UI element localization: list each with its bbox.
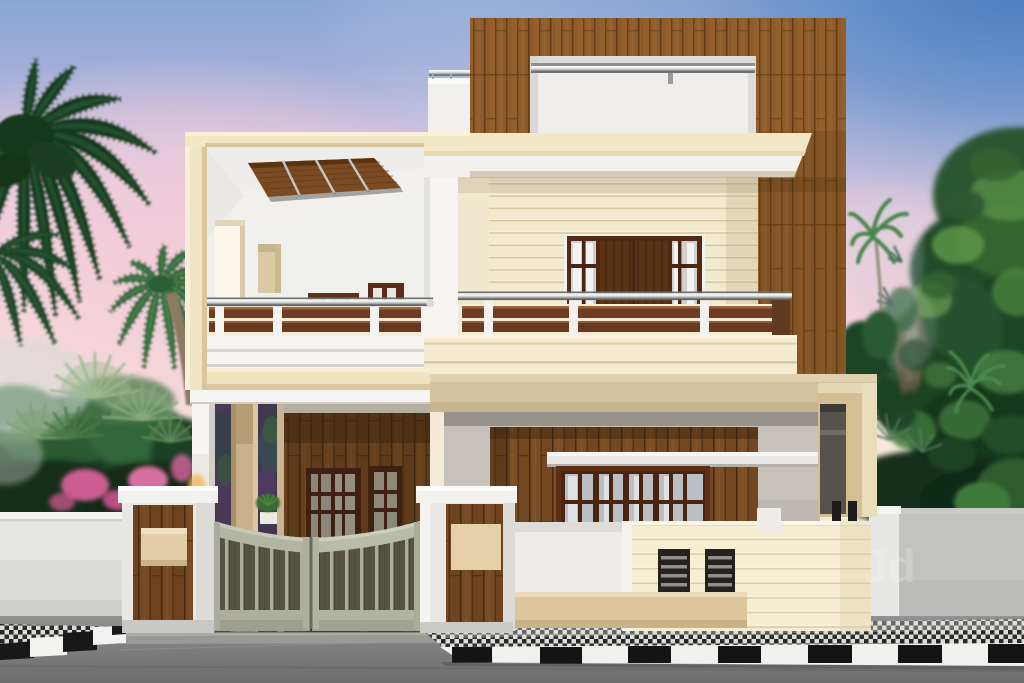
svg-text:Jd: Jd [862,540,916,592]
